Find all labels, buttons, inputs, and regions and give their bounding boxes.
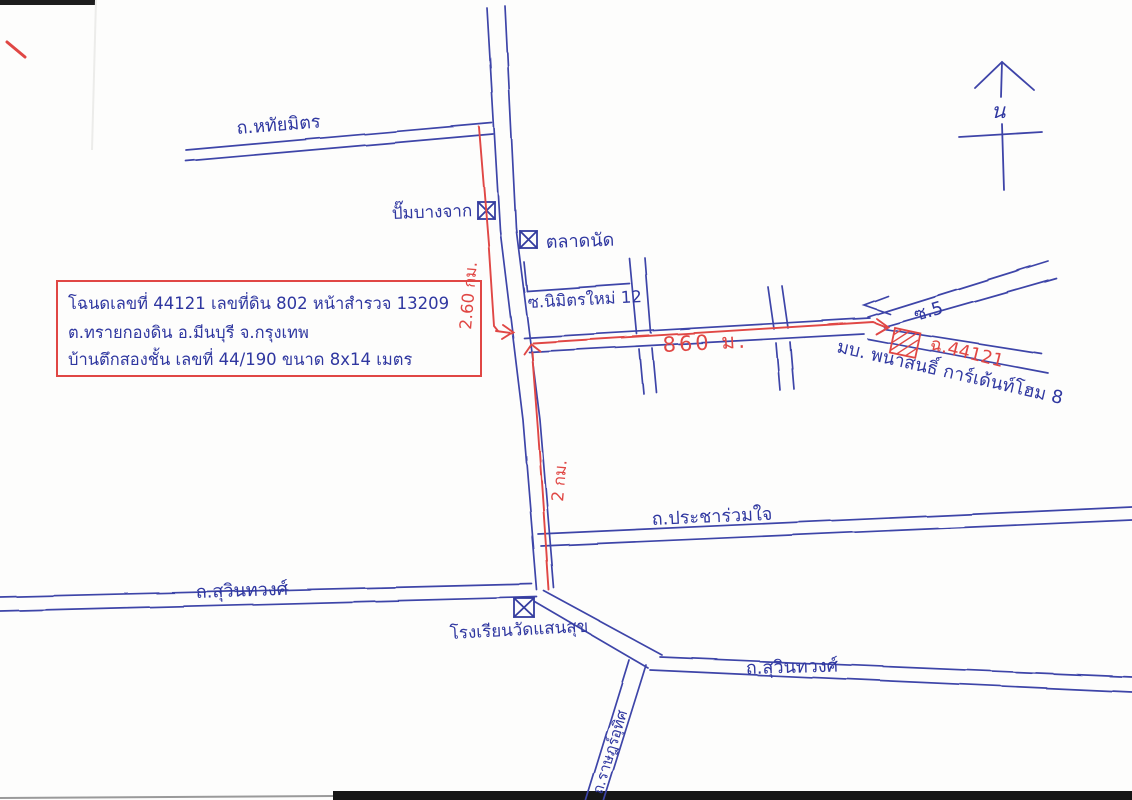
label-school: โรงเรียนวัดแสนสุข (449, 616, 589, 644)
info-line-2: ต.ทรายกองดิน อ.มีนบุรี จ.กรุงเทพ (68, 323, 309, 343)
school-symbol (514, 598, 534, 617)
label-pracha-ruam-jai: ถ.ประชาร่วมใจ (651, 503, 773, 530)
route-arrow-dest (876, 319, 888, 334)
scan-artifacts (0, 0, 1132, 800)
info-line-1: โฉนดเลขที่ 44121 เลขที่ดิน 802 หน้าสำรวจ… (68, 292, 449, 313)
distance-east: 860 ม. (662, 329, 748, 357)
distance-south: 2 กม. (548, 459, 571, 502)
nimit-block-lines (524, 262, 630, 291)
info-box: โฉนดเลขที่ 44121 เลขที่ดิน 802 หน้าสำรวจ… (57, 281, 481, 376)
label-market: ตลาดนัด (545, 230, 614, 253)
north-label: น (991, 99, 1006, 123)
label-rat-uthit: ถ.ราษฎร์อุทิศ (589, 707, 633, 796)
road-network (0, 6, 1132, 800)
label-hathai-mit: ถ.หทัยมิตร (236, 111, 322, 139)
side-soi-1 (630, 258, 656, 393)
label-suwinthawong-west: ถ.สุวินทวงศ์ (195, 579, 288, 603)
hand-drawn-map: น โฉนดเลขที่ 44121 เลขที่ดิน 802 หน้าสำร… (0, 0, 1132, 800)
north-arrow (959, 62, 1042, 190)
road-pracha-ruam-jai (538, 507, 1132, 546)
scanned-map-page: น โฉนดเลขที่ 44121 เลขที่ดิน 802 หน้าสำร… (0, 0, 1132, 800)
label-nimit-mai-12: ซ.นิมิตรใหม่ 12 (527, 287, 642, 312)
info-line-3: บ้านตึกสองชั้น เลขที่ 44/190 ขนาด 8x14 เ… (68, 347, 412, 369)
label-gas-station: ปั๊มบางจาก (391, 197, 472, 224)
road-suwinthawong-east (650, 657, 1132, 692)
market-symbol (520, 231, 537, 248)
red-edge-mark (7, 42, 25, 57)
label-suwinthawong-east: ถ.สุวินทวงศ์ (746, 656, 839, 679)
road-hathai-mit (186, 123, 493, 161)
distance-north: 2.60 กม. (456, 261, 481, 331)
